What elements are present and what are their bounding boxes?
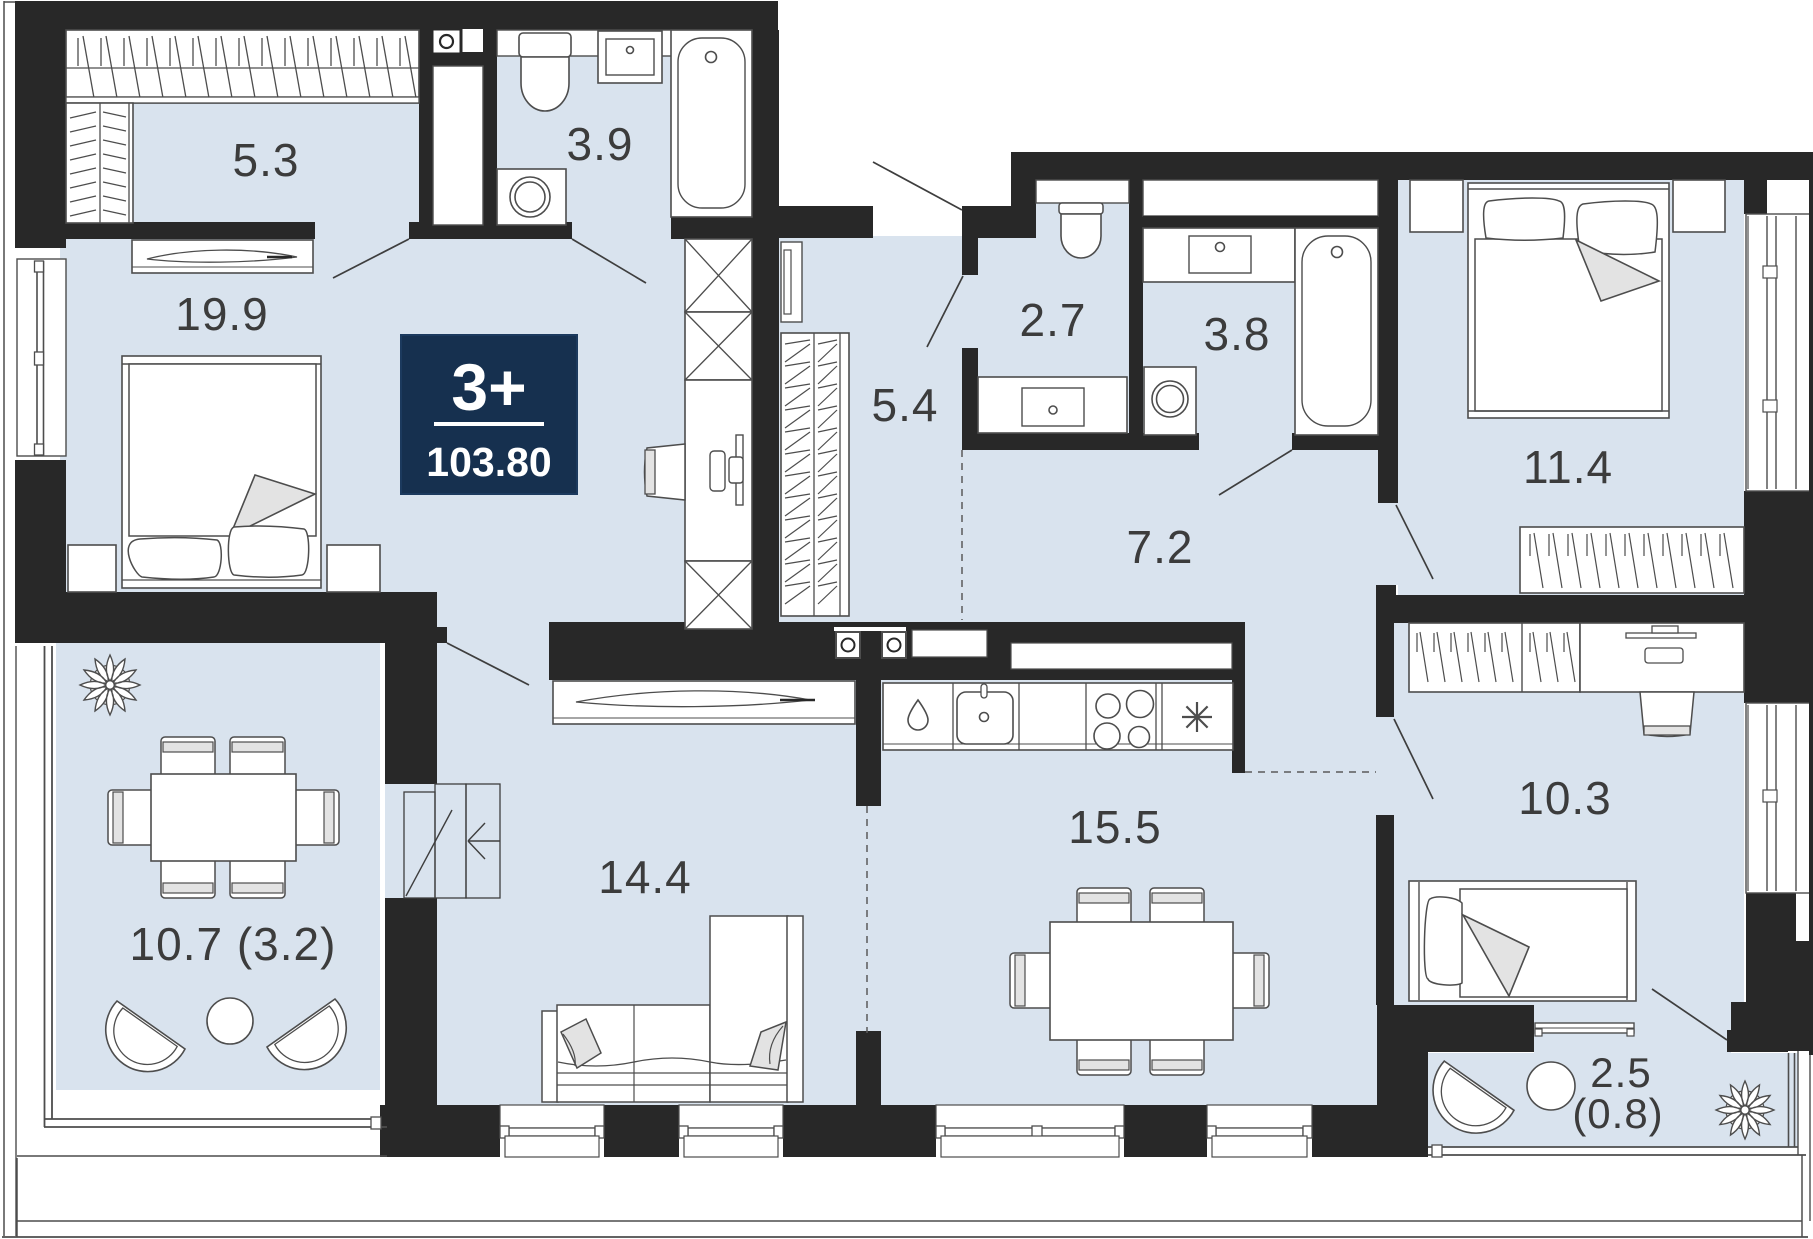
svg-text:3.8: 3.8 (1204, 308, 1271, 360)
svg-text:15.5: 15.5 (1068, 801, 1162, 853)
svg-text:5.3: 5.3 (233, 134, 300, 186)
svg-text:3+: 3+ (451, 350, 526, 424)
svg-text:2.7: 2.7 (1020, 294, 1087, 346)
svg-text:10.3: 10.3 (1518, 772, 1612, 824)
svg-text:11.4: 11.4 (1523, 441, 1613, 493)
svg-text:10.7 (3.2): 10.7 (3.2) (130, 918, 337, 970)
svg-text:103.80: 103.80 (426, 439, 551, 485)
svg-text:2.5: 2.5 (1590, 1049, 1651, 1096)
svg-text:(0.8): (0.8) (1572, 1090, 1663, 1137)
svg-text:7.2: 7.2 (1127, 521, 1194, 573)
svg-text:19.9: 19.9 (175, 288, 269, 340)
svg-text:5.4: 5.4 (872, 379, 939, 431)
svg-text:3.9: 3.9 (567, 118, 634, 170)
svg-text:14.4: 14.4 (598, 851, 692, 903)
